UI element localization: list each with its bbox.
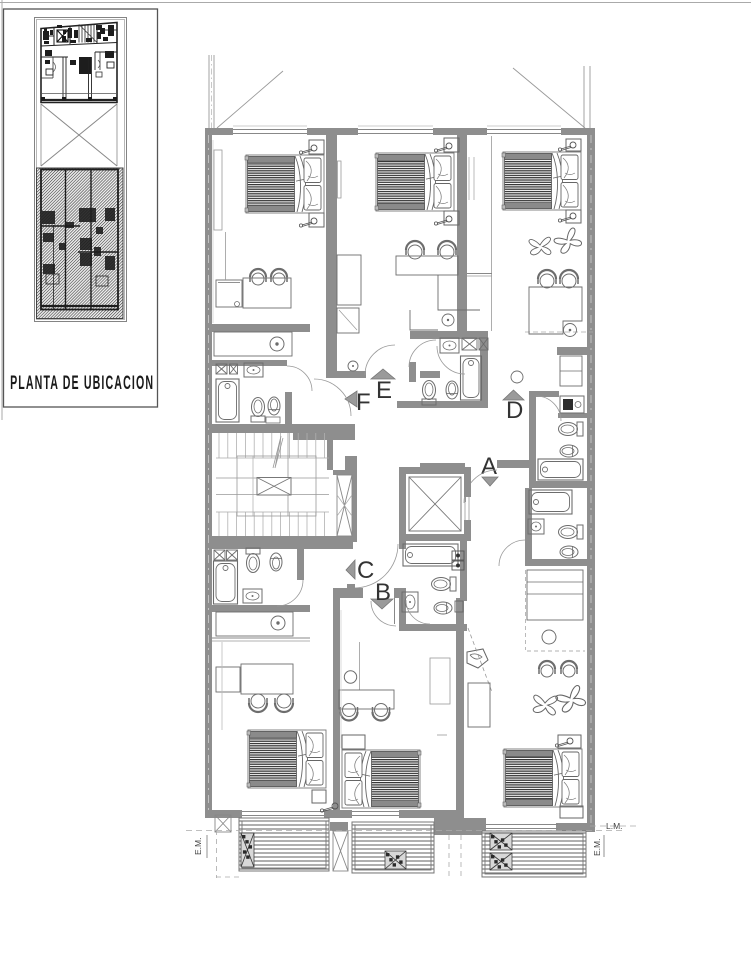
svg-text:E.M.: E.M. [592,839,602,856]
svg-text:A: A [481,453,497,480]
svg-text:F: F [356,389,371,416]
svg-text:E.M.: E.M. [193,838,203,855]
svg-text:E: E [376,377,392,404]
svg-text:PLANTA DE UBICACION: PLANTA DE UBICACION [10,373,154,394]
svg-text:B: B [375,579,391,606]
svg-text:L.M.: L.M. [606,821,623,831]
svg-text:C: C [357,557,374,584]
svg-text:D: D [506,397,523,424]
